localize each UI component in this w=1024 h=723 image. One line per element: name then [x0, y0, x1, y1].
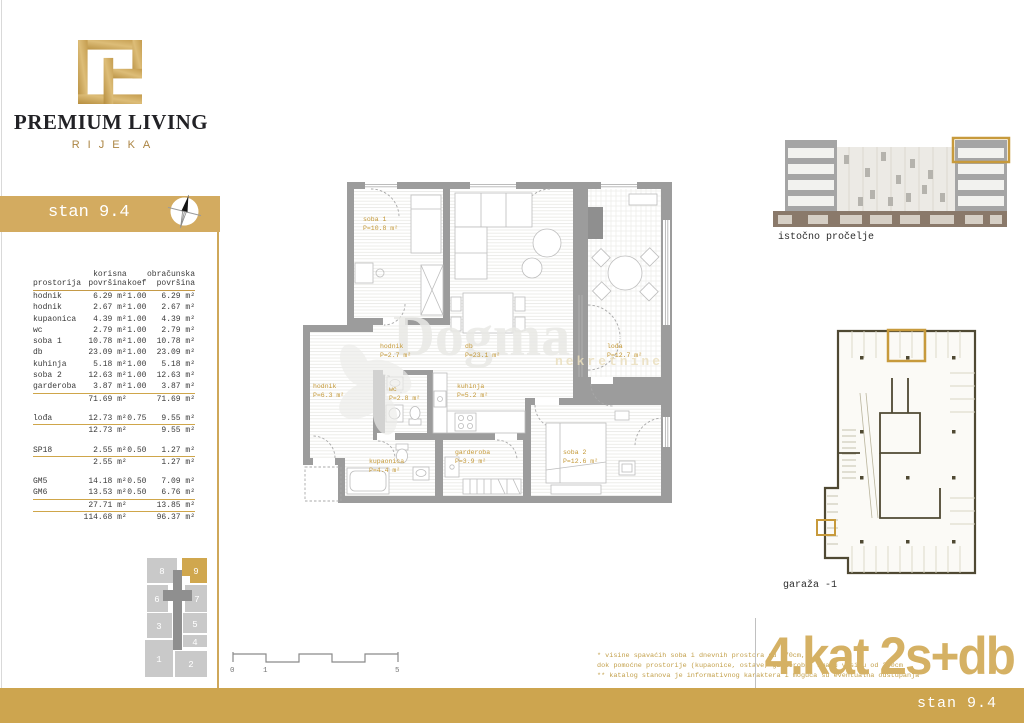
col-header-room: prostorija: [33, 270, 82, 291]
svg-text:P=12.6 m²: P=12.6 m²: [563, 458, 598, 465]
area-table-row: 2.55 m² 1.27 m²: [33, 456, 195, 468]
brand-city: RIJEKA: [0, 139, 222, 151]
svg-text:1: 1: [156, 655, 161, 665]
svg-text:hodnik: hodnik: [380, 343, 404, 350]
page-edge-line: [1, 0, 2, 689]
area-table-row: soba 1 10.78 m² 1.00 10.78 m²: [33, 336, 195, 347]
svg-text:5: 5: [395, 667, 400, 675]
bottom-unit-label: stan 9.4: [917, 695, 997, 712]
svg-text:P=12.7 m²: P=12.7 m²: [607, 352, 642, 359]
scale-bar: 0 1 5: [228, 648, 408, 676]
area-table: prostorija korisna površina koef obračun…: [33, 270, 195, 523]
svg-text:P=23.1 m²: P=23.1 m²: [465, 352, 500, 359]
brand-name: PREMIUM LIVING: [0, 110, 222, 135]
area-table-header-row: prostorija korisna površina koef obračun…: [33, 270, 195, 291]
north-compass-icon: [166, 193, 203, 230]
area-table-row: GM5 14.18 m² 0.50 7.09 m²: [33, 476, 195, 487]
svg-text:7: 7: [194, 595, 199, 605]
area-table-row: kuhinja 5.18 m² 1.00 5.18 m²: [33, 359, 195, 370]
svg-text:P=2.8 m²: P=2.8 m²: [389, 395, 420, 402]
area-table-row: GM6 13.53 m² 0.50 6.76 m²: [33, 487, 195, 499]
wall-db-loda: [573, 189, 588, 295]
svg-text:1: 1: [263, 667, 268, 675]
garage-label: garaža -1: [783, 580, 837, 591]
area-table-row: [33, 468, 195, 476]
svg-text:soba 2: soba 2: [563, 449, 587, 456]
svg-text:6: 6: [154, 595, 159, 605]
garage-plan-drawing: [800, 318, 1000, 580]
area-table-row: SP18 2.55 m² 0.50 1.27 m²: [33, 445, 195, 457]
svg-text:P=10.8 m²: P=10.8 m²: [363, 225, 398, 232]
svg-text:wc: wc: [389, 386, 397, 393]
area-table-row: hodnik 6.29 m² 1.00 6.29 m²: [33, 291, 195, 303]
svg-text:3: 3: [156, 622, 161, 632]
area-table-row: 27.71 m² 13.85 m²: [33, 499, 195, 511]
svg-text:4: 4: [192, 638, 197, 648]
area-table-row: kupaonica 4.39 m² 1.00 4.39 m²: [33, 314, 195, 325]
entrance-landing: [305, 467, 341, 501]
area-table-row: db 23.09 m² 1.00 23.09 m²: [33, 347, 195, 358]
area-table-row: wc 2.79 m² 1.00 2.79 m²: [33, 325, 195, 336]
unit-position-stack-diagram: 8 9 6 7 3 5 4 1 2: [138, 550, 230, 682]
shaft-block: [588, 207, 603, 239]
svg-text:kuhinja: kuhinja: [457, 383, 484, 390]
svg-text:5: 5: [192, 620, 197, 630]
svg-text:lođa: lođa: [607, 343, 623, 350]
svg-text:kupaonica: kupaonica: [369, 458, 404, 465]
area-table-row: 114.68 m² 96.37 m²: [33, 512, 195, 524]
apartment-floor-plan: Dogma nekretnine soba 1 P=10.8 m² db P=2…: [285, 165, 770, 535]
svg-text:garderoba: garderoba: [455, 449, 490, 456]
svg-text:db: db: [465, 343, 473, 350]
premium-living-logo-icon: [78, 40, 142, 104]
col-header-koef: koef: [127, 270, 147, 291]
svg-text:8: 8: [159, 567, 164, 577]
area-table-row: 71.69 m² 71.69 m²: [33, 393, 195, 405]
elevation-label: istočno pročelje: [778, 232, 874, 243]
area-table-row: 12.73 m² 9.55 m²: [33, 425, 195, 437]
bottom-gold-bar: [0, 688, 1024, 723]
floor-type-label: 4.kat 2s+db: [735, 629, 1014, 685]
catalog-page: PREMIUM LIVING RIJEKA stan 9.4 prostorij…: [0, 0, 1024, 723]
svg-text:P=4.4 m²: P=4.4 m²: [369, 467, 400, 474]
area-table-row: garderoba 3.87 m² 1.00 3.87 m²: [33, 381, 195, 393]
area-table-row: [33, 405, 195, 413]
svg-text:9: 9: [193, 567, 198, 577]
col-header-calc: obračunska površina: [147, 270, 195, 291]
east-elevation-drawing: [770, 135, 1015, 235]
svg-text:hodnik: hodnik: [313, 383, 337, 390]
svg-text:2: 2: [188, 660, 193, 670]
area-table-row: lođa 12.73 m² 0.75 9.55 m²: [33, 413, 195, 425]
col-header-net: korisna površina: [82, 270, 126, 291]
svg-text:P=2.7 m²: P=2.7 m²: [380, 352, 411, 359]
svg-text:soba 1: soba 1: [363, 216, 387, 223]
svg-text:0: 0: [230, 667, 235, 675]
area-table-row: [33, 437, 195, 445]
svg-text:P=5.2 m²: P=5.2 m²: [457, 392, 488, 399]
svg-text:P=6.3 m²: P=6.3 m²: [313, 392, 344, 399]
unit-title: stan 9.4: [48, 203, 130, 222]
area-table-row: soba 2 12.63 m² 1.00 12.63 m²: [33, 370, 195, 381]
area-table-row: hodnik 2.67 m² 1.00 2.67 m²: [33, 302, 195, 313]
svg-text:P=3.9 m²: P=3.9 m²: [455, 458, 486, 465]
